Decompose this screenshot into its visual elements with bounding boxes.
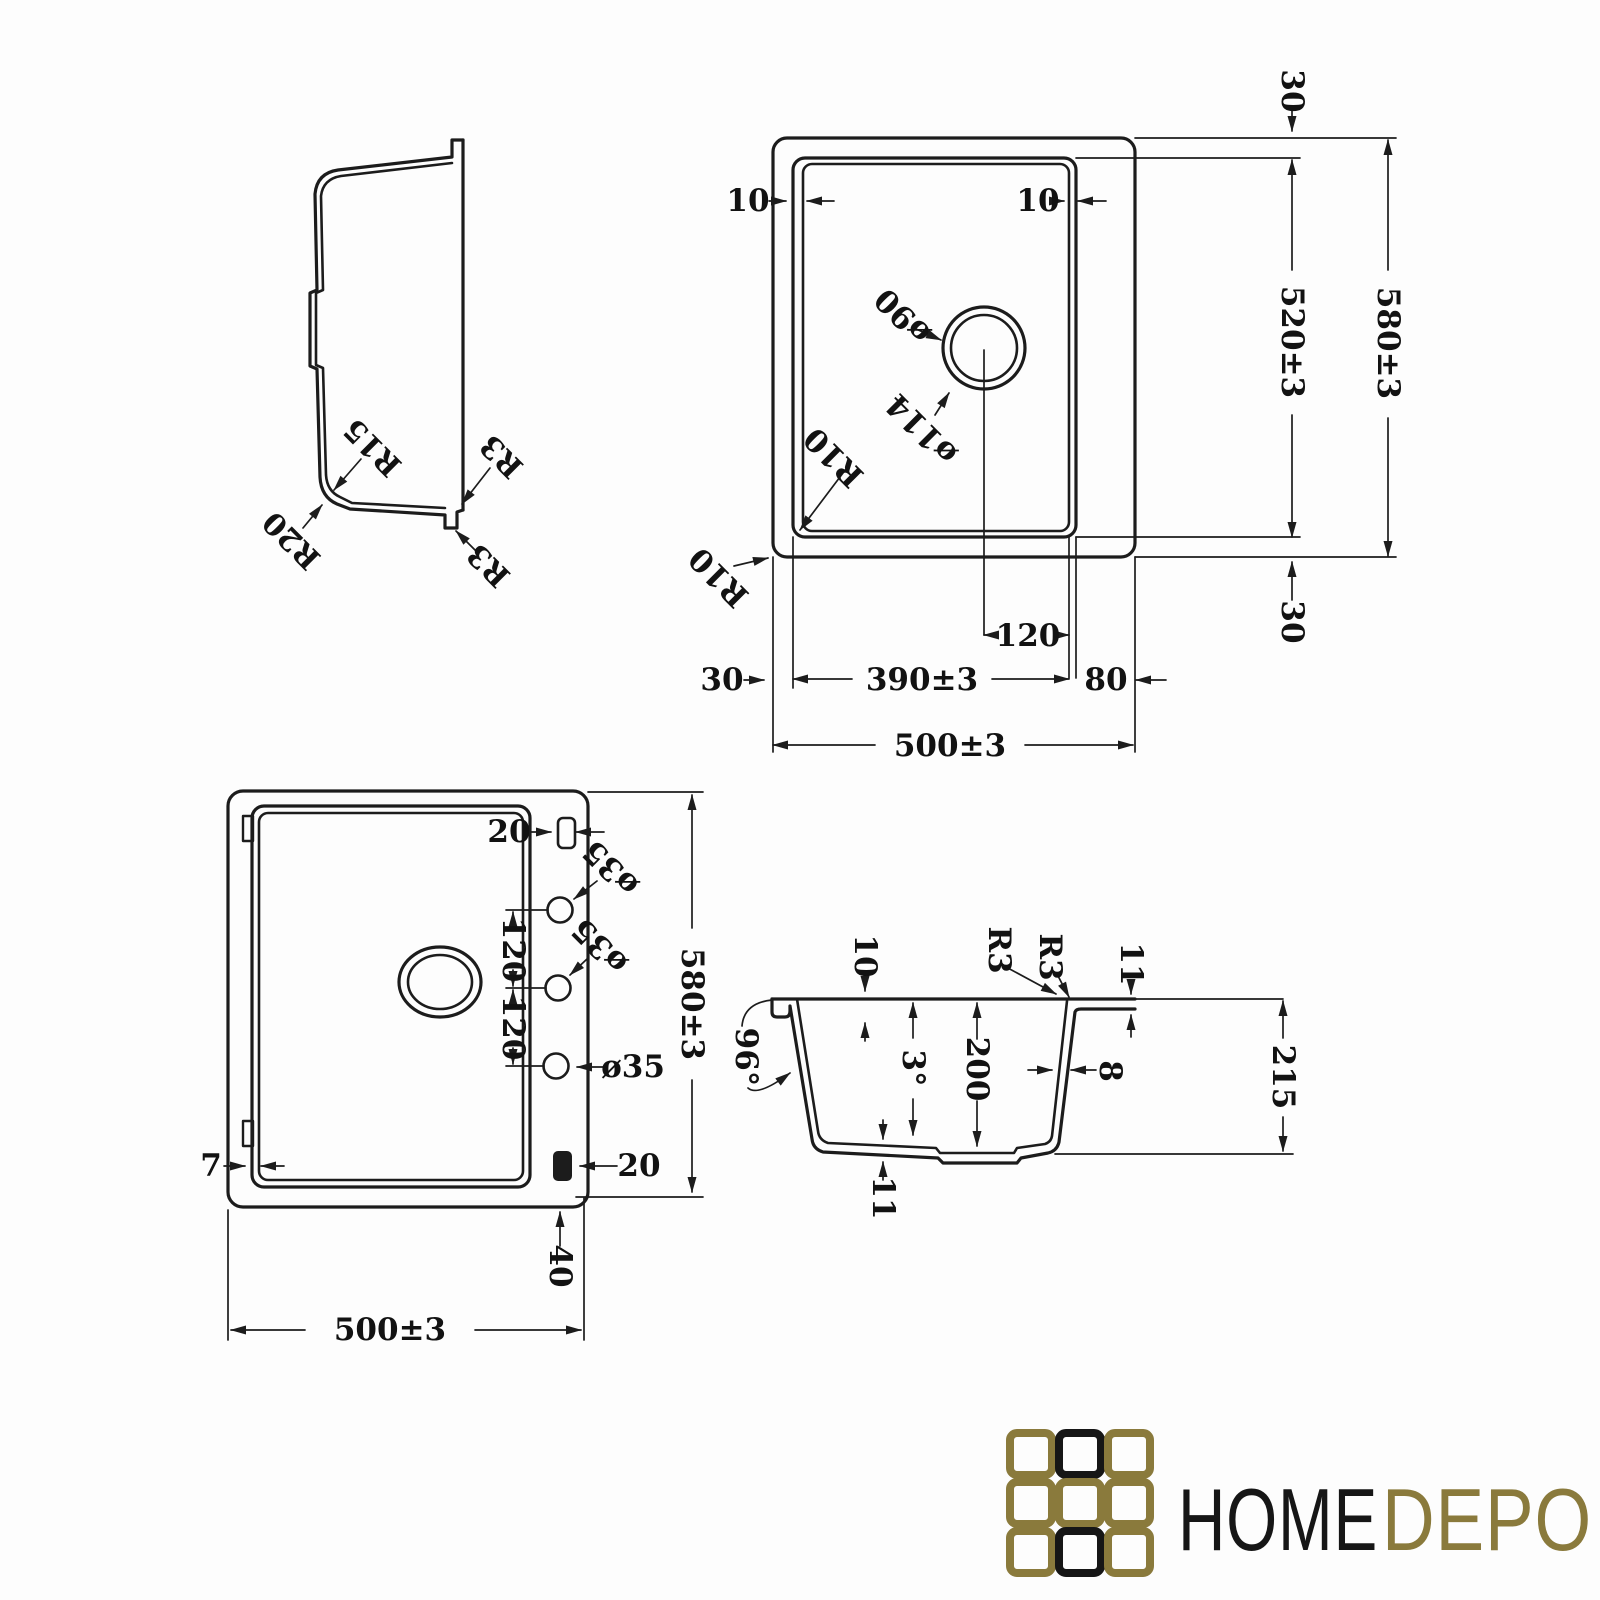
- dim-20-top: 20: [487, 814, 530, 850]
- logo-square: [1010, 1433, 1052, 1475]
- dim-30-top: 30: [1274, 69, 1310, 112]
- technical-drawing-sheet: R15 R20 R3 R3 30 520±3 580±3: [0, 0, 1600, 1600]
- tap-hole-mid: [546, 976, 571, 1001]
- clip-slot-top: [558, 818, 575, 848]
- r15-label: R15: [337, 411, 409, 483]
- section-inner-profile: [797, 999, 1067, 1153]
- dim-r10-sink-leader: [734, 558, 768, 566]
- dim-r10-bowl: R10: [797, 420, 871, 494]
- section-view: 10 R3 R3 11 96° 3° 200 8 215 11: [728, 926, 1301, 1219]
- homedepo-logo: HOMEDEPO: [1010, 1433, 1592, 1573]
- dim-580: 580±3: [1370, 287, 1406, 399]
- bottom-view-sink-outline: [228, 791, 588, 1207]
- dim-d114-leader: [935, 393, 949, 415]
- logo-square: [1059, 1482, 1101, 1524]
- dim-r10-sink: R10: [682, 540, 756, 614]
- top-view: 30 520±3 580±3 30 10 10 ø90 ø114 R10 R10…: [682, 69, 1406, 764]
- dim-520: 520±3: [1274, 286, 1310, 398]
- dim-30-bottom: 30: [1274, 600, 1310, 643]
- logo-square: [1059, 1531, 1101, 1573]
- dim-7: 7: [200, 1148, 222, 1184]
- r15-leader: [334, 459, 361, 490]
- tap-hole-bottom: [544, 1054, 569, 1079]
- logo-wordmark: HOMEDEPO: [1178, 1470, 1592, 1569]
- r3-top-leader: [462, 468, 490, 504]
- dim-d90: ø90: [868, 281, 939, 352]
- dim-d35b-leader: [570, 959, 587, 975]
- dim-d35a-leader: [574, 881, 597, 899]
- logo-square: [1010, 1531, 1052, 1573]
- logo-text-home: HOME: [1178, 1470, 1378, 1569]
- dim-120: 120: [996, 618, 1061, 654]
- dim-wall-thickness: 8: [1092, 1060, 1128, 1082]
- logo-text-depo: DEPO: [1382, 1470, 1592, 1569]
- bottom-view: 20 ø35 ø35 ø35 120 120 7 20 40 500±3: [200, 791, 710, 1348]
- side-profile-view: R15 R20 R3 R3: [256, 140, 531, 594]
- dim-120-pitch-top: 120: [495, 918, 531, 983]
- logo-square: [1108, 1433, 1150, 1475]
- logo-square: [1059, 1433, 1101, 1475]
- dim-500: 500±3: [894, 728, 1006, 764]
- dim-120-pitch-bottom: 120: [495, 996, 531, 1061]
- section-outer-profile: [772, 999, 1135, 1163]
- dim-d114: ø114: [879, 386, 965, 472]
- dim-bottom-thickness: 11: [865, 1176, 901, 1219]
- logo-grid-icon: [1010, 1433, 1150, 1573]
- bottom-view-bowl-inner: [259, 813, 523, 1180]
- dim-20-right: 20: [617, 1148, 660, 1184]
- dim-r3-b: R3: [1032, 933, 1068, 980]
- dim-96-leader-a: [742, 1000, 772, 1026]
- drawing-canvas: R15 R20 R3 R3 30 520±3 580±3: [0, 0, 1600, 1600]
- logo-square: [1108, 1531, 1150, 1573]
- dim-d35-bottom: ø35: [601, 1049, 665, 1085]
- bottom-view-drain-inner: [408, 955, 472, 1009]
- dim-390: 390±3: [866, 662, 978, 698]
- dim-80: 80: [1084, 662, 1127, 698]
- bottom-view-drain-outer: [399, 947, 481, 1017]
- r20-label: R20: [256, 504, 328, 576]
- dim-40: 40: [542, 1244, 578, 1287]
- dim-draft-angle: 3°: [895, 1049, 931, 1086]
- dim-500-bottom: 500±3: [334, 1312, 446, 1348]
- bottom-view-bowl-outer: [252, 806, 530, 1187]
- dim-10-left: 10: [726, 183, 769, 219]
- tap-hole-top: [548, 898, 573, 923]
- dim-bowl-depth: 200: [959, 1037, 995, 1102]
- r20-leader: [303, 505, 322, 528]
- dim-10-right: 10: [1016, 183, 1059, 219]
- dim-r3-a: R3: [981, 926, 1017, 973]
- dim-overall-depth: 215: [1265, 1045, 1301, 1110]
- dim-d35-top: ø35: [576, 833, 647, 904]
- logo-square: [1108, 1482, 1150, 1524]
- logo-square: [1010, 1482, 1052, 1524]
- dim-580-right: 580±3: [674, 948, 710, 1060]
- dim-deck-thickness: 11: [1113, 942, 1149, 985]
- dim-rim-depth: 10: [847, 934, 883, 977]
- r3-top-label: R3: [473, 427, 530, 484]
- clip-slot-bottom: [553, 1151, 572, 1181]
- dim-30-left: 30: [700, 662, 743, 698]
- dim-flange-angle: 96°: [728, 1028, 764, 1087]
